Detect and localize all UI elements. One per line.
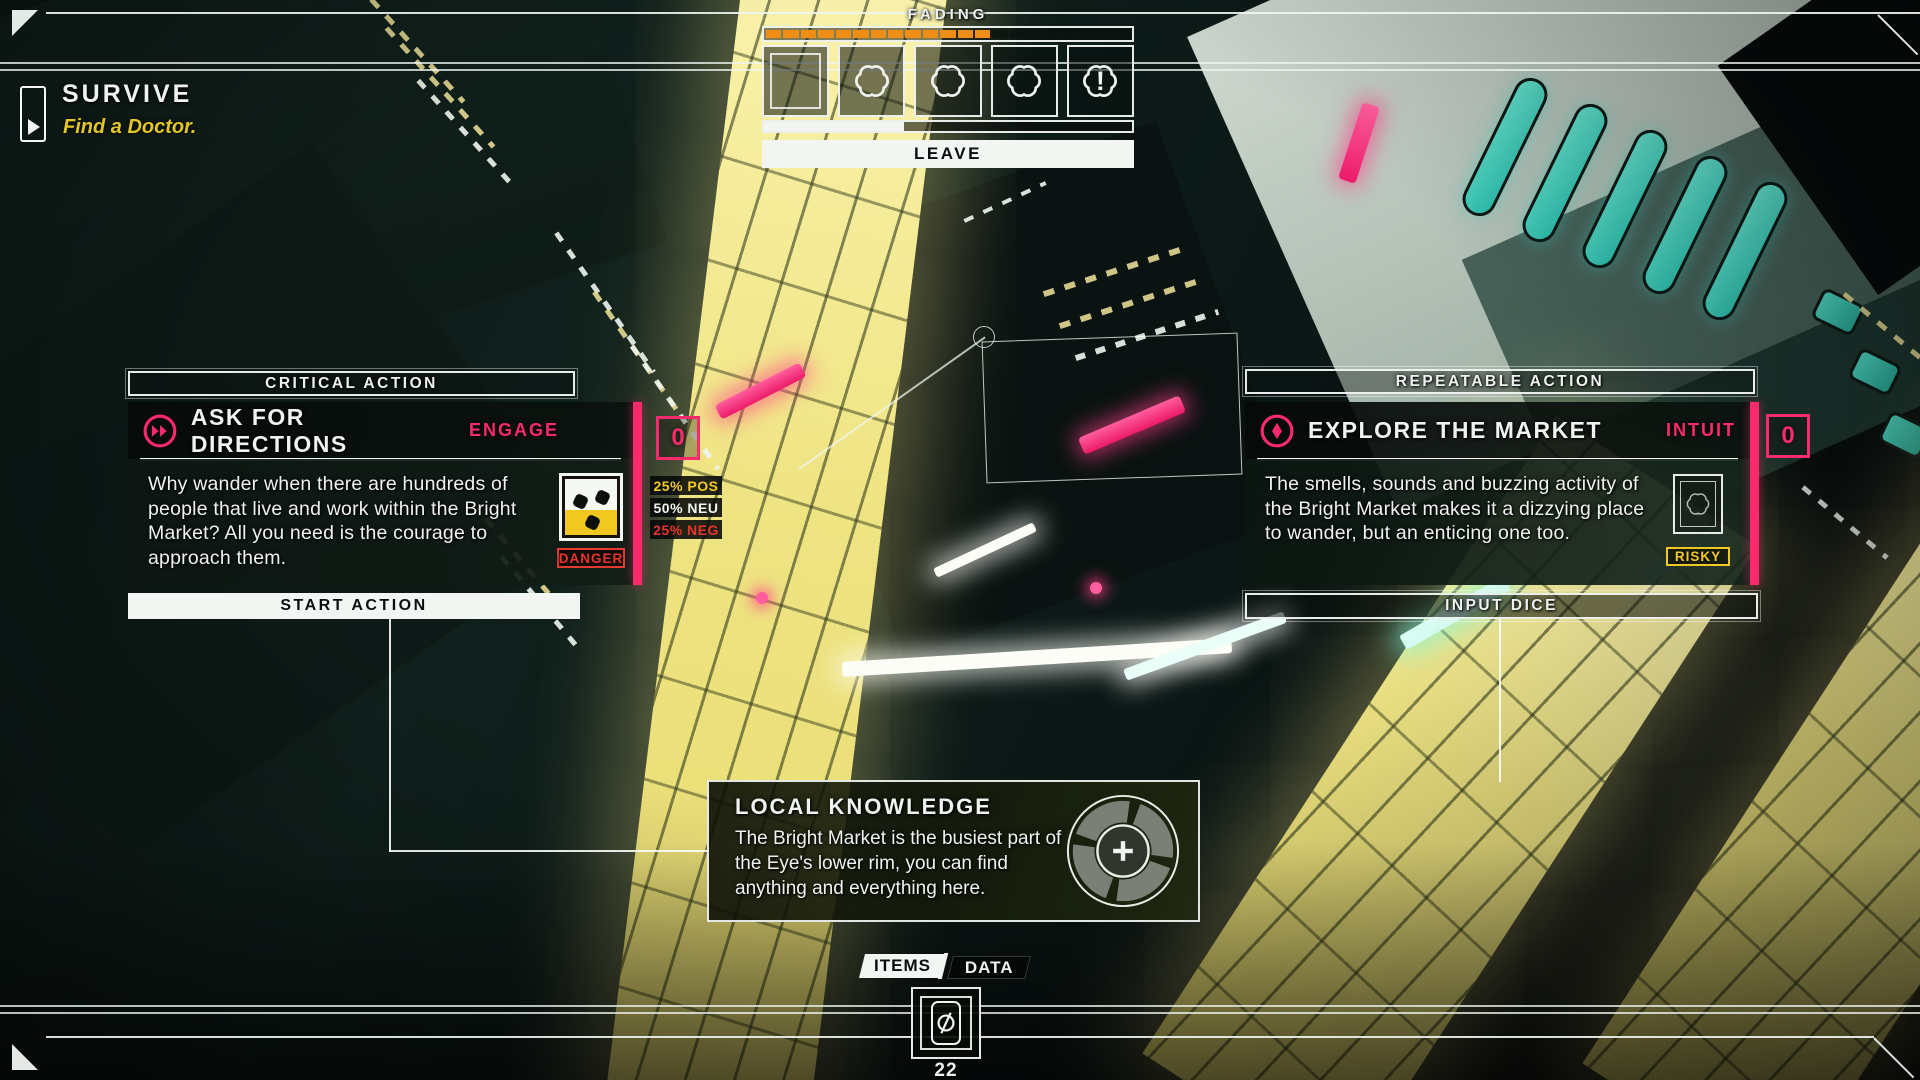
tab-items[interactable]: ITEMS (859, 954, 945, 978)
location-marker-box (982, 333, 1243, 484)
clock-segment (1045, 30, 1060, 38)
objective-subtitle: Find a Doctor. (63, 116, 196, 139)
play-icon (28, 119, 40, 135)
clock-segment (766, 30, 781, 38)
left-card-description: Why wander when there are hundreds of pe… (148, 472, 540, 570)
clock-slot-die[interactable] (914, 45, 981, 117)
tab-data-label: DATA (965, 958, 1014, 978)
clock-segment (975, 30, 990, 38)
drive-card-icon (931, 1001, 961, 1045)
clock-segment (818, 30, 833, 38)
clock-progress-bar (762, 120, 1134, 133)
outcome-chip: 25% POS (650, 476, 722, 495)
outcome-percentages: 25% POS50% NEU25% NEG (650, 476, 722, 542)
clock-slot-die[interactable] (991, 45, 1058, 117)
left-card-dice-socket[interactable]: 0 (656, 416, 700, 460)
empty-slot-frame (770, 53, 821, 109)
clock-segment (992, 30, 1007, 38)
empty-die-slot-icon (1673, 474, 1723, 534)
leave-button[interactable]: LEAVE (762, 140, 1134, 168)
die-flower-icon (999, 56, 1049, 106)
right-card-edge-bar (1750, 402, 1759, 585)
fading-clock: FADING ! LEAVE (762, 6, 1134, 168)
connector-left-horizontal (389, 850, 709, 852)
clock-segment (923, 30, 938, 38)
tab-items-label: ITEMS (874, 956, 931, 976)
clock-title: FADING (762, 6, 1134, 23)
right-card-dice-socket[interactable]: 0 (1766, 414, 1810, 458)
clock-segment (871, 30, 886, 38)
objective-marker[interactable] (20, 86, 46, 142)
intuit-diamond-icon (1259, 413, 1295, 449)
left-card-risk-badge: DANGER (557, 548, 625, 568)
clock-segment-bar (762, 26, 1134, 42)
die-flower-icon (1681, 487, 1715, 521)
probability-die-icon (559, 473, 623, 541)
clock-segment (940, 30, 955, 38)
clock-segment (1080, 30, 1095, 38)
frame-corner-top-left (12, 10, 38, 36)
right-card-header: REPEATABLE ACTION (1245, 369, 1755, 394)
game-screen: SURVIVE Find a Doctor. FADING ! LEAVE CR… (0, 0, 1920, 1080)
clock-slot-danger[interactable]: ! (1067, 45, 1134, 117)
clock-segment (888, 30, 903, 38)
connector-left-vertical (389, 619, 391, 852)
clock-segment (836, 30, 851, 38)
clock-segment (1062, 30, 1077, 38)
start-action-button[interactable]: START ACTION (128, 593, 580, 619)
clock-segment (1027, 30, 1042, 38)
clock-segment (1114, 30, 1129, 38)
clock-segment (905, 30, 920, 38)
right-card-description: The smells, sounds and buzzing activity … (1265, 472, 1657, 546)
fast-forward-icon (142, 413, 178, 449)
outcome-chip: 25% NEG (650, 520, 722, 539)
clock-dice-slots: ! (762, 45, 1134, 117)
right-card-skill: INTUIT (1666, 420, 1736, 441)
left-card-edge-bar (633, 402, 642, 585)
die-flower-icon (923, 56, 973, 106)
frame-corner-bottom-left (12, 1044, 38, 1070)
clock-segment (1010, 30, 1025, 38)
right-card-risk-badge: RISKY (1666, 547, 1730, 566)
clock-segment (1097, 30, 1112, 38)
left-card-title: ASK FOR DIRECTIONS (191, 404, 469, 458)
warning-exclamation-icon: ! (1069, 47, 1132, 115)
knowledge-dial-plus-icon[interactable] (1064, 792, 1182, 910)
input-dice-button[interactable]: INPUT DICE (1245, 593, 1758, 619)
drive-dice-button[interactable] (911, 987, 981, 1059)
drive-glyph-icon (933, 1010, 959, 1036)
clock-segment (958, 30, 973, 38)
clock-slot-empty[interactable] (762, 45, 829, 117)
clock-segment (853, 30, 868, 38)
drive-dice-count: 22 (911, 1060, 981, 1080)
clock-slot-die[interactable] (838, 45, 905, 117)
connector-right-vertical (1499, 619, 1501, 782)
local-knowledge-panel: LOCAL KNOWLEDGE The Bright Market is the… (707, 780, 1200, 922)
clock-segment (783, 30, 798, 38)
left-card-skill: ENGAGE (469, 420, 559, 441)
left-card-header: CRITICAL ACTION (128, 371, 575, 396)
outcome-chip: 50% NEU (650, 498, 722, 517)
die-flower-icon (847, 56, 897, 106)
clock-segment (801, 30, 816, 38)
local-knowledge-description: The Bright Market is the busiest part of… (735, 826, 1065, 901)
tab-data[interactable]: DATA (947, 956, 1031, 979)
objective-title: SURVIVE (62, 80, 192, 109)
right-card-title: EXPLORE THE MARKET (1308, 417, 1602, 444)
